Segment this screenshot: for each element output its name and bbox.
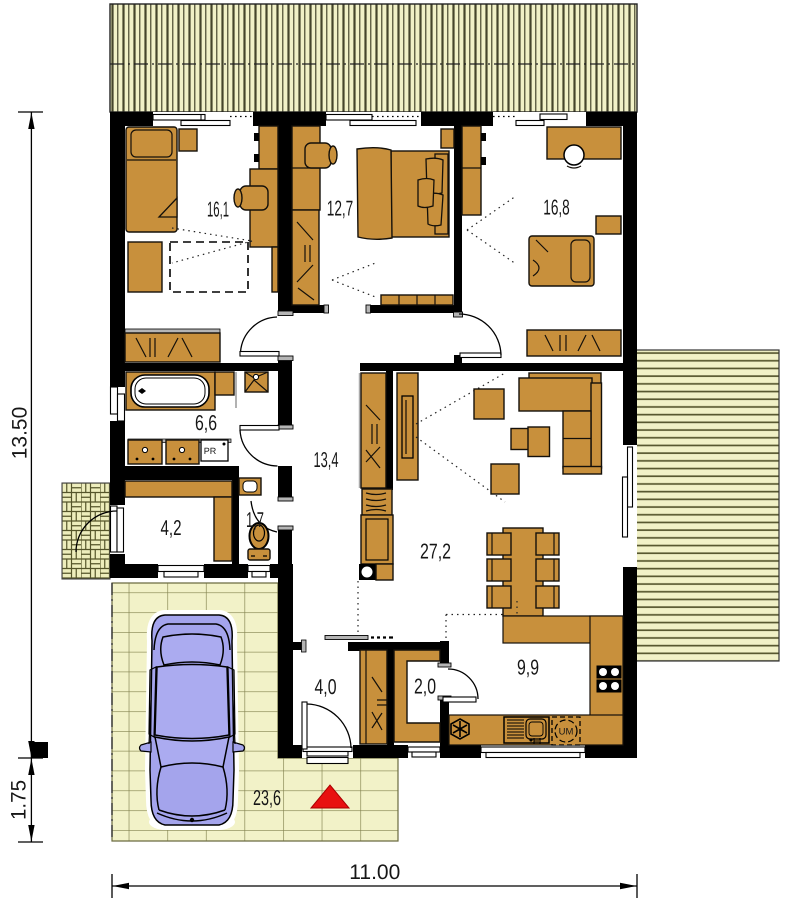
svg-text:9,9: 9,9 <box>517 656 539 680</box>
svg-text:1,7: 1,7 <box>246 508 264 532</box>
svg-text:16,1: 16,1 <box>207 198 229 222</box>
svg-text:4,2: 4,2 <box>161 516 182 540</box>
svg-text:UM: UM <box>559 727 574 738</box>
svg-text:2,0: 2,0 <box>414 675 436 699</box>
svg-text:4,0: 4,0 <box>315 675 337 699</box>
svg-text:27,2: 27,2 <box>420 540 451 564</box>
svg-text:16,8: 16,8 <box>543 196 570 220</box>
svg-text:1.75: 1.75 <box>8 780 31 820</box>
svg-text:6,6: 6,6 <box>195 411 217 435</box>
svg-text:11.00: 11.00 <box>349 861 400 884</box>
svg-text:PR: PR <box>204 446 217 456</box>
svg-text:23,6: 23,6 <box>253 786 281 810</box>
svg-text:13.50: 13.50 <box>9 407 32 460</box>
svg-text:12,7: 12,7 <box>327 197 354 221</box>
svg-text:13,4: 13,4 <box>314 448 339 472</box>
